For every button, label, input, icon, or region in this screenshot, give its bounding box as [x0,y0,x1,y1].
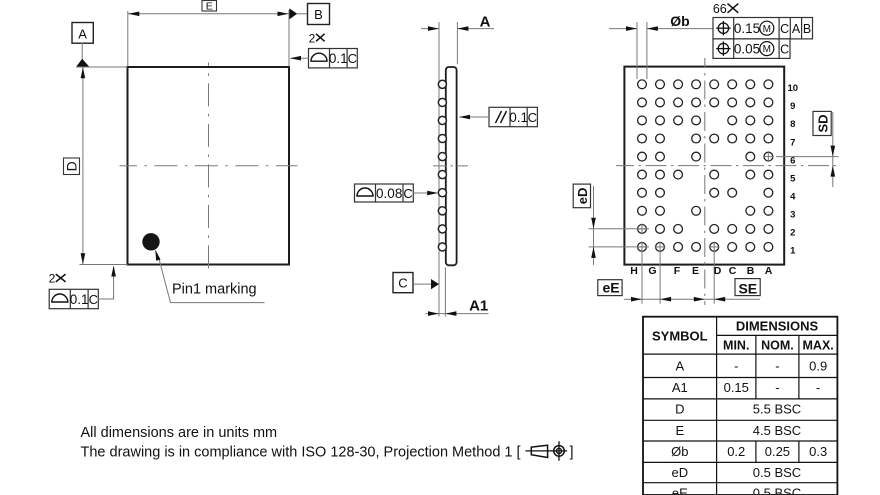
svg-text:eE: eE [672,486,688,495]
svg-text:6: 6 [790,155,795,166]
svg-text:A: A [675,359,684,374]
svg-text:1: 1 [790,246,796,257]
svg-text:SD: SD [815,114,830,132]
svg-text:0.25: 0.25 [765,444,790,459]
svg-text:E: E [692,265,699,277]
svg-text:eD: eD [575,188,590,205]
svg-text:0.1: 0.1 [329,51,348,66]
svg-text:2: 2 [790,228,795,239]
svg-text:C: C [780,42,789,56]
svg-text:0.1: 0.1 [70,292,89,307]
svg-text:A: A [78,27,87,42]
svg-text:A1: A1 [672,380,688,395]
svg-text:5.5 BSC: 5.5 BSC [753,402,801,417]
svg-text:]: ] [570,445,574,461]
svg-text:A: A [765,265,773,277]
svg-text:H: H [630,265,638,277]
svg-text:D: D [714,265,722,277]
svg-text:SYMBOL: SYMBOL [652,329,708,344]
svg-text:4.5 BSC: 4.5 BSC [753,423,801,438]
svg-text:D: D [675,402,684,417]
svg-text:0.5 BSC: 0.5 BSC [753,486,801,495]
svg-text:0.08: 0.08 [376,186,402,201]
svg-text:10: 10 [788,83,799,94]
svg-text:C: C [729,265,737,277]
svg-text:-: - [816,380,820,395]
svg-text:MIN.: MIN. [723,338,749,352]
svg-text:The drawing is in compliance w: The drawing is in compliance with ISO 12… [81,445,521,461]
svg-text:9: 9 [790,101,795,112]
svg-text:A1: A1 [469,298,488,315]
svg-text:M: M [763,24,771,35]
svg-text:2: 2 [49,271,56,285]
svg-text:eD: eD [671,465,688,480]
svg-text:0.2: 0.2 [727,444,745,459]
svg-text:eE: eE [602,280,619,296]
svg-text:2: 2 [309,31,316,45]
svg-text:0.1: 0.1 [509,110,528,125]
svg-text:4: 4 [790,192,796,203]
svg-text:G: G [648,265,656,277]
svg-text:E: E [675,423,684,438]
svg-text:B: B [747,265,755,277]
svg-text:0.9: 0.9 [809,359,827,374]
svg-text:0.15: 0.15 [724,380,749,395]
svg-text:Øb: Øb [671,444,688,459]
svg-text:-: - [775,359,779,374]
svg-text:C: C [398,276,407,291]
svg-text:E: E [206,1,213,13]
svg-text:0.3: 0.3 [809,444,827,459]
svg-text:M: M [763,44,771,55]
svg-text:C: C [528,110,537,125]
svg-text:-: - [775,380,779,395]
svg-text:SE: SE [738,281,757,297]
svg-text:DIMENSIONS: DIMENSIONS [736,319,819,334]
svg-text:0.5 BSC: 0.5 BSC [753,465,801,480]
svg-text:B: B [803,22,811,36]
svg-text:B: B [314,7,323,22]
svg-text:Øb: Øb [670,13,689,29]
svg-text:3: 3 [790,210,795,221]
svg-text:C: C [348,51,357,66]
svg-text:NOM.: NOM. [761,338,794,352]
svg-text:Pin1 marking: Pin1 marking [172,282,257,298]
svg-text:All dimensions are in units mm: All dimensions are in units mm [81,425,278,441]
svg-text:66: 66 [713,2,727,16]
svg-text:D: D [64,161,80,171]
svg-text:A: A [480,14,491,31]
svg-text:7: 7 [790,137,795,148]
svg-text:MAX.: MAX. [803,338,834,352]
svg-text:0.15: 0.15 [734,21,760,36]
svg-text:F: F [674,265,681,277]
svg-text:C: C [780,22,789,36]
svg-text:A: A [792,22,801,36]
svg-text:C: C [403,186,412,201]
svg-text:C: C [89,292,98,307]
svg-text:8: 8 [790,119,795,130]
svg-text:5: 5 [790,173,796,184]
svg-text:-: - [734,359,738,374]
svg-text:0.05: 0.05 [734,41,760,56]
